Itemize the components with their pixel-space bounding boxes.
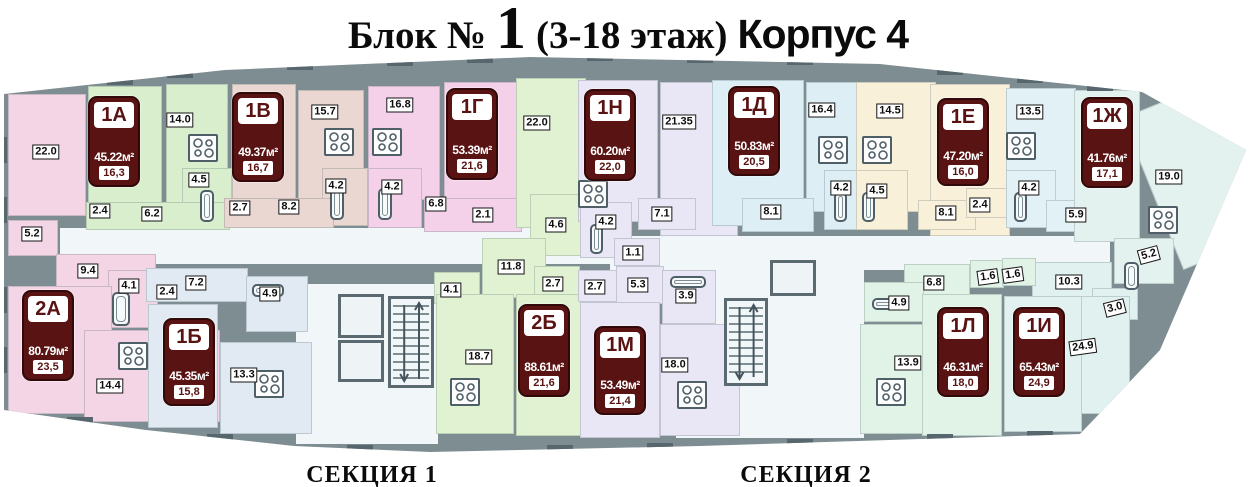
unit-total-area: 53.49м²: [600, 378, 639, 392]
room-area-label: 8.2: [278, 200, 299, 215]
window-mark: [347, 445, 373, 452]
room-area-label: 1.6: [976, 268, 999, 286]
room-area-label: 1.6: [1001, 266, 1024, 284]
room-area-label: 4.1: [118, 279, 139, 294]
room-area-label: 22.0: [523, 116, 550, 131]
unit-total-area: 60.20м²: [590, 144, 629, 158]
unit-code: 2Б: [524, 310, 564, 336]
unit-living-area: 16,3: [99, 166, 128, 180]
unit-badge-1М: 1М53.49м²21,4: [594, 326, 646, 415]
window-mark: [927, 434, 953, 441]
unit-total-area: 50.83м²: [734, 139, 773, 153]
room-area-label: 18.0: [661, 358, 688, 373]
unit-living-area: 22,0: [595, 160, 624, 174]
room-area-label: 7.2: [185, 276, 206, 291]
unit-living-area: 23,5: [33, 360, 62, 374]
unit-badge-1Н: 1Н60.20м²22,0: [584, 89, 636, 181]
room-area-label: 4.9: [888, 296, 909, 311]
unit-badge-2А: 2А80.79м²23,5: [22, 290, 74, 381]
unit-code: 1В: [238, 98, 278, 124]
unit-living-area: 21,4: [605, 394, 634, 408]
window-mark: [1017, 76, 1043, 83]
room-area-label: 11.8: [498, 260, 525, 275]
unit-total-area: 53.39м²: [452, 143, 491, 157]
unit-code: 1Ж: [1087, 103, 1127, 129]
room-area-label: 19.0: [1155, 170, 1182, 185]
unit-total-area: 65.43м²: [1019, 360, 1058, 374]
room-area-label: 14.5: [876, 104, 903, 119]
room-area-label: 16.8: [386, 98, 413, 113]
unit-badge-1Л: 1Л46.31м²18,0: [937, 307, 989, 397]
window-mark: [207, 434, 233, 441]
bathtub-icon: [112, 292, 130, 326]
window-mark: [287, 63, 313, 70]
stove-icon: [677, 381, 707, 409]
page-title: Блок № 1 (3-18 этаж) Корпус 4: [0, 0, 1256, 63]
room-area-label: 3.9: [675, 289, 696, 304]
floor-plan-page: Блок № 1 (3-18 этаж) Корпус 4: [0, 0, 1256, 487]
unit-total-area: 45.35м²: [169, 369, 208, 383]
stove-icon: [118, 342, 148, 370]
room-area-label: 4.9: [259, 287, 280, 302]
room-area-label: 2.7: [229, 201, 250, 216]
room-area-label: 13.9: [894, 356, 921, 371]
title-korpus: Корпус 4: [737, 11, 908, 58]
room-area-label: 16.4: [808, 103, 835, 118]
bathtub-icon: [1124, 262, 1139, 290]
title-block: Блок №: [348, 13, 486, 58]
window-mark: [937, 68, 963, 75]
window-mark: [0, 197, 7, 223]
unit-living-area: 16,7: [243, 161, 272, 175]
room-area-label: 5.9: [1065, 208, 1086, 223]
unit-living-area: 15,8: [174, 385, 203, 399]
room-area-label: 18.7: [465, 350, 492, 365]
room-area-label: 2.1: [472, 208, 493, 223]
unit-code: 1Л: [943, 313, 983, 339]
stove-icon: [372, 128, 402, 156]
unit-code: 1Б: [169, 324, 209, 350]
window-mark: [0, 137, 7, 163]
room-area-label: 4.5: [188, 173, 209, 188]
room-area-label: 4.2: [595, 215, 616, 230]
section-1-label: СЕКЦИЯ 1: [262, 462, 482, 487]
elevator-shaft: [338, 294, 384, 338]
room-area-label: 22.0: [32, 145, 59, 160]
unit-living-area: 20,5: [739, 155, 768, 169]
room-area-label: 4.2: [325, 179, 346, 194]
room-area-label: 10.3: [1055, 275, 1082, 290]
window-mark: [647, 443, 673, 450]
stove-icon: [450, 378, 480, 406]
bathtub-icon: [200, 190, 214, 222]
room-area-label: 1.1: [622, 246, 643, 261]
window-mark: [0, 347, 7, 373]
unit-total-area: 47.20м²: [943, 149, 982, 163]
room-area-label: 2.4: [969, 198, 990, 213]
unit-living-area: 18,0: [948, 376, 977, 390]
elevator-shaft: [770, 260, 816, 296]
section-2-label: СЕКЦИЯ 2: [696, 462, 916, 487]
stove-icon: [324, 128, 354, 156]
unit-code: 1И: [1019, 313, 1059, 339]
unit-badge-2Б: 2Б88.61м²21,6: [518, 304, 570, 397]
unit-total-area: 80.79м²: [28, 344, 67, 358]
stove-icon: [578, 180, 608, 208]
unit-living-area: 21,6: [457, 159, 486, 173]
unit-code: 1Е: [943, 104, 983, 130]
unit-total-area: 41.76м²: [1087, 151, 1126, 165]
unit-code: 1Н: [590, 95, 630, 121]
unit-living-area: 17,1: [1092, 167, 1121, 181]
room-area-label: 4.2: [381, 180, 402, 195]
unit-total-area: 49.37м²: [238, 145, 277, 159]
window-mark: [67, 417, 93, 424]
bathtub-icon: [670, 276, 706, 288]
room-region: [368, 168, 422, 228]
unit-badge-1Д: 1Д50.83м²20,5: [728, 86, 780, 176]
building-outline: 22.05.29.44.114.414.04.52.46.215.72.78.2…: [0, 0, 1256, 487]
window-mark: [1087, 84, 1113, 91]
room-area-label: 7.1: [651, 207, 672, 222]
room-area-label: 2.4: [89, 204, 110, 219]
unit-total-area: 46.31м²: [943, 360, 982, 374]
bathtub-icon: [1014, 192, 1027, 222]
room-area-label: 8.1: [935, 206, 956, 221]
unit-living-area: 21,6: [529, 376, 558, 390]
unit-total-area: 88.61м²: [524, 360, 563, 374]
unit-badge-1Б: 1Б45.35м²15,8: [163, 318, 215, 406]
title-number: 1: [496, 0, 526, 63]
unit-badge-1А: 1А45.22м²16,3: [88, 96, 140, 187]
unit-code: 1Д: [734, 92, 774, 118]
room-area-label: 14.4: [96, 379, 123, 394]
room-area-label: 5.2: [21, 227, 42, 242]
room-area-label: 4.1: [440, 283, 461, 298]
window-mark: [1027, 431, 1053, 438]
unit-code: 1М: [600, 332, 640, 358]
room-area-label: 4.5: [866, 184, 887, 199]
stairs-icon: [724, 298, 768, 386]
room-area-label: 5.3: [627, 278, 648, 293]
room-area-label: 4.6: [545, 218, 566, 233]
unit-living-area: 24,9: [1024, 376, 1053, 390]
stove-icon: [862, 136, 892, 164]
unit-code: 1А: [94, 102, 134, 128]
stove-icon: [254, 370, 284, 398]
stove-icon: [1006, 132, 1036, 160]
room-area-label: 13.3: [230, 368, 257, 383]
stove-icon: [188, 134, 218, 162]
room-area-label: 13.5: [1016, 105, 1043, 120]
bathtub-icon: [834, 192, 847, 222]
unit-badge-1В: 1В49.37м²16,7: [232, 92, 284, 182]
stove-icon: [1148, 206, 1178, 234]
window-mark: [167, 71, 193, 78]
unit-code: 1Г: [452, 94, 492, 120]
room-area-label: 2.4: [156, 285, 177, 300]
room-area-label: 8.1: [760, 205, 781, 220]
window-mark: [547, 445, 573, 452]
title-floors: (3-18 этаж): [536, 13, 727, 58]
stairs-icon: [388, 296, 434, 388]
unit-badge-1Г: 1Г53.39м²21,6: [446, 88, 498, 180]
stove-icon: [818, 136, 848, 164]
unit-badge-1Е: 1Е47.20м²16,0: [937, 98, 989, 186]
stove-icon: [876, 378, 906, 406]
unit-living-area: 16,0: [948, 165, 977, 179]
room-area-label: 2.7: [542, 277, 563, 292]
unit-badge-1И: 1И65.43м²24,9: [1013, 307, 1065, 397]
room-area-label: 6.8: [923, 276, 944, 291]
room-area-label: 9.4: [77, 264, 98, 279]
window-mark: [0, 287, 7, 313]
room-area-label: 21.35: [662, 115, 696, 130]
room-area-label: 4.2: [1018, 181, 1039, 196]
unit-badge-1Ж: 1Ж41.76м²17,1: [1081, 97, 1133, 188]
elevator-shaft: [338, 340, 384, 382]
room-area-label: 6.8: [425, 197, 446, 212]
unit-code: 2А: [28, 296, 68, 322]
unit-total-area: 45.22м²: [94, 150, 133, 164]
window-mark: [107, 78, 133, 85]
room-area-label: 15.7: [311, 105, 338, 120]
room-area-label: 4.2: [830, 181, 851, 196]
window-mark: [787, 439, 813, 446]
room-area-label: 14.0: [166, 113, 193, 128]
room-area-label: 2.7: [584, 280, 605, 295]
room-area-label: 6.2: [141, 207, 162, 222]
